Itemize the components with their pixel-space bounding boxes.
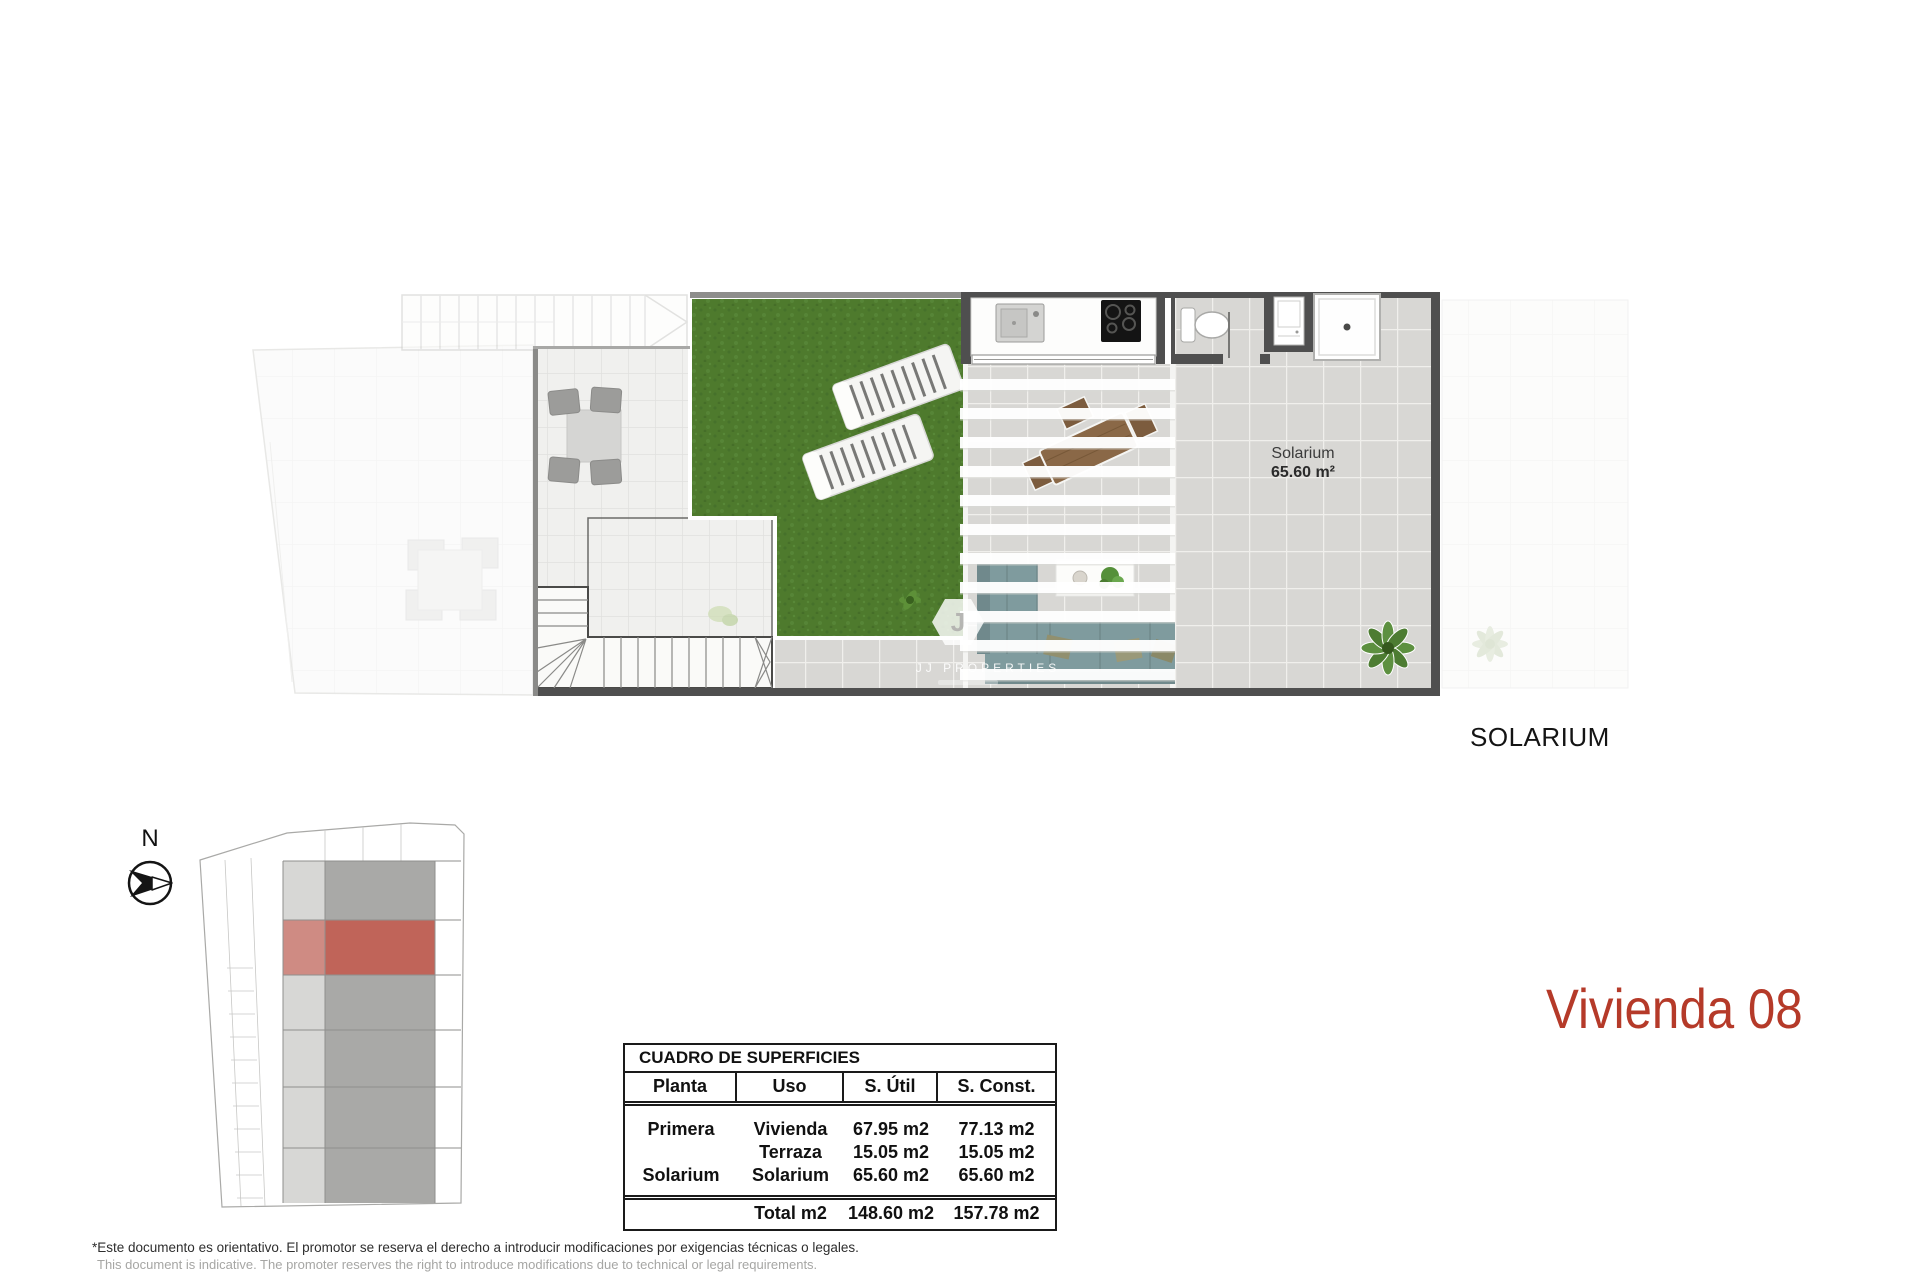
cell: Solarium bbox=[625, 1164, 737, 1187]
solarium-area-label: 65.60 m² bbox=[1271, 464, 1335, 481]
table-row: Terraza 15.05 m2 15.05 m2 bbox=[625, 1141, 1055, 1164]
cell: Total m2 bbox=[737, 1203, 844, 1224]
cell: 157.78 m2 bbox=[938, 1203, 1055, 1224]
cell: 77.13 m2 bbox=[938, 1118, 1055, 1141]
cell: 15.05 m2 bbox=[844, 1141, 938, 1164]
brochure-page: Solarium 65.60 m² bbox=[0, 0, 1920, 1280]
landing-platform bbox=[588, 518, 772, 637]
cell: 15.05 m2 bbox=[938, 1141, 1055, 1164]
pergola bbox=[960, 364, 1178, 688]
cell: Solarium bbox=[737, 1164, 844, 1187]
floor-label: SOLARIUM bbox=[1470, 722, 1610, 753]
cell: 148.60 m2 bbox=[844, 1203, 938, 1224]
right-wall bbox=[1431, 292, 1440, 688]
table-total-row: Total m2 148.60 m2 157.78 m2 bbox=[625, 1195, 1055, 1229]
table-header-row: Planta Uso S. Útil S. Const. bbox=[625, 1073, 1055, 1106]
logo-letter: J bbox=[951, 607, 965, 638]
cell: Vivienda bbox=[737, 1118, 844, 1141]
cell: Primera bbox=[625, 1118, 737, 1141]
col-header: Uso bbox=[737, 1073, 844, 1101]
unit-highlight-main bbox=[325, 920, 435, 975]
disclaimer-es: *Este documento es orientativo. El promo… bbox=[92, 1240, 859, 1255]
unit-highlight bbox=[283, 920, 325, 975]
building-strip-dark bbox=[325, 861, 435, 1203]
cell bbox=[625, 1203, 737, 1224]
north-label: N bbox=[141, 826, 158, 852]
floor-plan: Solarium 65.60 m² bbox=[250, 292, 1640, 712]
solarium-plant bbox=[1361, 621, 1415, 675]
watermark-text: JJ PROPERTIES bbox=[893, 661, 1083, 675]
solarium-floor: Solarium 65.60 m² bbox=[1175, 292, 1433, 688]
cell: 65.60 m2 bbox=[844, 1164, 938, 1187]
hob bbox=[1101, 300, 1141, 342]
left-wall bbox=[533, 346, 538, 696]
col-header: S. Útil bbox=[844, 1073, 938, 1101]
disclaimer: *Este documento es orientativo. El promo… bbox=[92, 1240, 859, 1272]
sink bbox=[996, 304, 1044, 342]
surfaces-table: CUADRO DE SUPERFICIES Planta Uso S. Útil… bbox=[623, 1043, 1057, 1231]
disclaimer-en: This document is indicative. The promote… bbox=[97, 1257, 859, 1272]
cell bbox=[625, 1141, 737, 1164]
table-row: Solarium Solarium 65.60 m2 65.60 m2 bbox=[625, 1164, 1055, 1187]
terrace-top-edge bbox=[533, 346, 690, 349]
neighbor-terrace-left bbox=[253, 345, 533, 695]
pergola-slats bbox=[960, 370, 1178, 688]
watermark-tagline-blur bbox=[938, 680, 998, 685]
shower-tray bbox=[1314, 294, 1380, 360]
kitchen-window bbox=[972, 355, 1155, 364]
neighbor-stairs-top bbox=[402, 295, 687, 350]
neighbor-palm bbox=[1472, 626, 1508, 662]
bottom-wall bbox=[533, 688, 1440, 696]
site-plan bbox=[195, 818, 475, 1218]
cell: 65.60 m2 bbox=[938, 1164, 1055, 1187]
col-header: Planta bbox=[625, 1073, 737, 1101]
building-strip-light bbox=[283, 861, 325, 1203]
table-row: Primera Vivienda 67.95 m2 77.13 m2 bbox=[625, 1118, 1055, 1141]
table-body: Primera Vivienda 67.95 m2 77.13 m2 Terra… bbox=[625, 1106, 1055, 1195]
table-title: CUADRO DE SUPERFICIES bbox=[625, 1045, 1055, 1073]
page-title: Vivienda 08 bbox=[1546, 976, 1803, 1041]
solarium-room-label: Solarium bbox=[1271, 445, 1334, 462]
cell: 67.95 m2 bbox=[844, 1118, 938, 1141]
grass-top-wall bbox=[690, 292, 965, 298]
north-arrow-icon: N bbox=[115, 826, 185, 911]
neighbor-solarium-right bbox=[1442, 300, 1628, 688]
col-header: S. Const. bbox=[938, 1073, 1055, 1101]
bath-cabinet bbox=[1264, 292, 1320, 352]
cell: Terraza bbox=[737, 1141, 844, 1164]
